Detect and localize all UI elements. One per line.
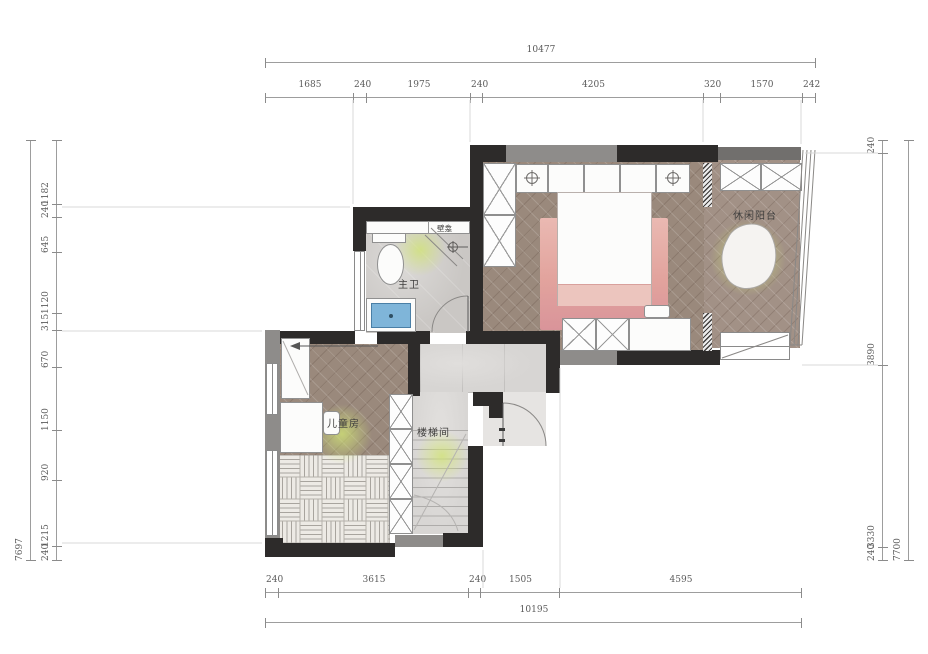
dim-value: 240 xyxy=(266,575,279,585)
toilet-tank xyxy=(372,233,406,243)
dim-value: 315 xyxy=(41,314,51,331)
wall-gray xyxy=(395,535,443,547)
dim-segment: 240 xyxy=(52,204,62,218)
shelf-divider xyxy=(428,221,429,234)
dim-segment: 4595 xyxy=(559,588,802,598)
dim-segment: 315 xyxy=(52,313,62,331)
dim-segment: 645 xyxy=(52,217,62,253)
dim-segment: 3890 xyxy=(878,153,888,366)
dim-tick xyxy=(815,93,816,103)
dim-value: 240 xyxy=(471,80,483,90)
dim-tick xyxy=(52,560,62,561)
kids-wardrobe xyxy=(389,394,413,429)
dim-value: 240 xyxy=(354,80,367,90)
dim-segment: 7697 xyxy=(26,140,36,561)
dim-value: 1150 xyxy=(41,368,51,431)
window-wall xyxy=(506,145,617,162)
dim-segment: 1150 xyxy=(52,367,62,431)
dim-top-chain: 1685 240 1975 240 4205 320 1570 242 xyxy=(265,97,815,98)
dim-value: 7697 xyxy=(15,141,25,561)
sliding-door-opening xyxy=(355,333,377,342)
dim-top-overall: 10477 xyxy=(265,62,815,63)
kids-desk xyxy=(280,402,323,453)
balcony-partition-hatch xyxy=(703,163,712,207)
dim-bottom-chain: 240 3615 240 1505 4595 xyxy=(265,592,801,593)
wall xyxy=(353,207,470,221)
kids-wardrobe xyxy=(389,464,413,499)
room-label-stairwell: 楼梯间 xyxy=(417,424,450,439)
wall xyxy=(353,207,366,251)
room-label-niche: 壁龛 xyxy=(437,223,452,234)
dim-value: 10195 xyxy=(266,605,802,615)
bedroom-cabinet xyxy=(596,318,629,351)
balcony-cabinet xyxy=(720,163,761,191)
dim-value: 242 xyxy=(803,80,816,90)
dim-segment: 670 xyxy=(52,330,62,368)
tatami-bed-platform xyxy=(278,455,390,544)
dim-segment: 1975 xyxy=(366,93,471,103)
room-label-kids-room: 儿童房 xyxy=(327,415,360,430)
bed-blanket xyxy=(558,284,651,306)
dresser xyxy=(629,318,691,351)
dim-value: 1975 xyxy=(367,80,471,90)
wall xyxy=(468,446,483,547)
dim-value: 4595 xyxy=(560,575,802,585)
dim-segment: 1570 xyxy=(720,93,803,103)
nightstand-right xyxy=(656,164,690,193)
dresser-stool xyxy=(644,305,670,318)
wall xyxy=(489,406,503,418)
dim-right-chain: 240 3890 3330 240 xyxy=(882,140,883,560)
dim-value: 4205 xyxy=(483,80,704,90)
wall xyxy=(617,145,718,162)
dim-segment: 3330 xyxy=(878,365,888,548)
dim-segment: 242 xyxy=(802,93,816,103)
dim-value: 240 xyxy=(469,575,481,585)
wall xyxy=(408,338,420,396)
dim-segment: 3615 xyxy=(278,588,469,598)
dim-segment: 10477 xyxy=(265,58,816,68)
dim-value: 1685 xyxy=(266,80,354,90)
dim-left-overall: 7697 xyxy=(30,140,31,560)
kids-wardrobe xyxy=(389,499,413,534)
wall xyxy=(377,331,430,344)
dim-segment: 240 xyxy=(878,547,888,561)
wall xyxy=(546,331,560,393)
wall xyxy=(473,392,503,406)
dim-segment: 1120 xyxy=(52,252,62,314)
dim-value: 1215 xyxy=(41,481,51,547)
dim-tick xyxy=(801,588,802,598)
dim-tick xyxy=(904,560,914,561)
room-label-master-bath: 主卫 xyxy=(398,276,420,291)
dim-value: 240 xyxy=(41,205,51,218)
headboard-panel xyxy=(584,164,620,193)
bedroom-wardrobe xyxy=(483,163,516,215)
wall xyxy=(470,145,506,162)
dim-segment: 240 xyxy=(52,546,62,561)
bedroom-wardrobe xyxy=(483,215,516,267)
wall xyxy=(617,350,720,365)
dim-value: 7700 xyxy=(893,141,903,561)
dim-segment: 7700 xyxy=(904,140,914,561)
kids-wardrobe xyxy=(389,429,413,464)
dim-segment: 10195 xyxy=(265,618,802,628)
dim-segment: 4205 xyxy=(482,93,704,103)
dim-tick xyxy=(801,618,802,628)
dim-segment: 240 xyxy=(353,93,367,103)
wall xyxy=(470,145,483,331)
dim-segment: 1685 xyxy=(265,93,354,103)
dim-left-chain: 1182 240 645 1120 315 670 1150 920 1215 … xyxy=(56,140,57,560)
dim-value: 645 xyxy=(41,218,51,253)
hall-floor xyxy=(420,344,546,393)
headboard-panel xyxy=(548,164,584,193)
balcony-bottom-window xyxy=(720,332,790,360)
dim-segment: 1182 xyxy=(52,140,62,205)
wall xyxy=(466,331,546,344)
dim-value: 1120 xyxy=(41,253,51,314)
dim-tick xyxy=(878,560,888,561)
dim-segment: 1505 xyxy=(480,588,560,598)
dim-value: 3615 xyxy=(279,575,469,585)
dim-segment: 320 xyxy=(703,93,721,103)
light-glow-balcony xyxy=(710,220,786,296)
dim-value: 670 xyxy=(41,331,51,368)
dim-value: 10477 xyxy=(266,45,816,55)
sink-basin-icon xyxy=(371,303,411,328)
room-label-balcony: 休闲阳台 xyxy=(733,207,777,222)
dim-value: 240 xyxy=(41,547,51,561)
floor-plan-sheet: 10477 1685 240 1975 240 4205 320 1570 24… xyxy=(0,0,928,654)
dim-value: 320 xyxy=(704,80,721,90)
dim-segment: 1215 xyxy=(52,480,62,547)
kids-room-window xyxy=(266,363,278,415)
wall-gray xyxy=(560,350,617,365)
headboard-panel xyxy=(620,164,656,193)
dim-tick xyxy=(815,58,816,68)
balcony-cabinet xyxy=(761,163,802,191)
dim-value: 1505 xyxy=(481,575,560,585)
dim-value: 240 xyxy=(867,141,877,154)
dim-value: 3890 xyxy=(867,154,877,366)
kids-room-window xyxy=(266,450,278,536)
dim-value: 3330 xyxy=(867,366,877,548)
dim-segment: 240 xyxy=(878,140,888,154)
wall xyxy=(265,543,395,557)
bedroom-cabinet xyxy=(562,318,596,351)
tatami-pattern xyxy=(278,455,390,544)
nightstand-left xyxy=(516,164,548,193)
dim-tick xyxy=(26,560,36,561)
dim-segment: 920 xyxy=(52,430,62,481)
dim-bottom-overall: 10195 xyxy=(265,622,801,623)
dim-segment: 240 xyxy=(265,588,279,598)
dim-value: 240 xyxy=(867,548,877,561)
kids-bookshelf xyxy=(281,338,310,399)
dim-right-overall: 7700 xyxy=(908,140,909,560)
bathroom-window xyxy=(354,251,365,331)
dim-value: 1570 xyxy=(721,80,803,90)
dim-value: 920 xyxy=(41,431,51,481)
balcony-partition-hatch xyxy=(703,313,712,351)
balcony-top-wall xyxy=(718,147,801,160)
dim-value: 1182 xyxy=(41,141,51,205)
